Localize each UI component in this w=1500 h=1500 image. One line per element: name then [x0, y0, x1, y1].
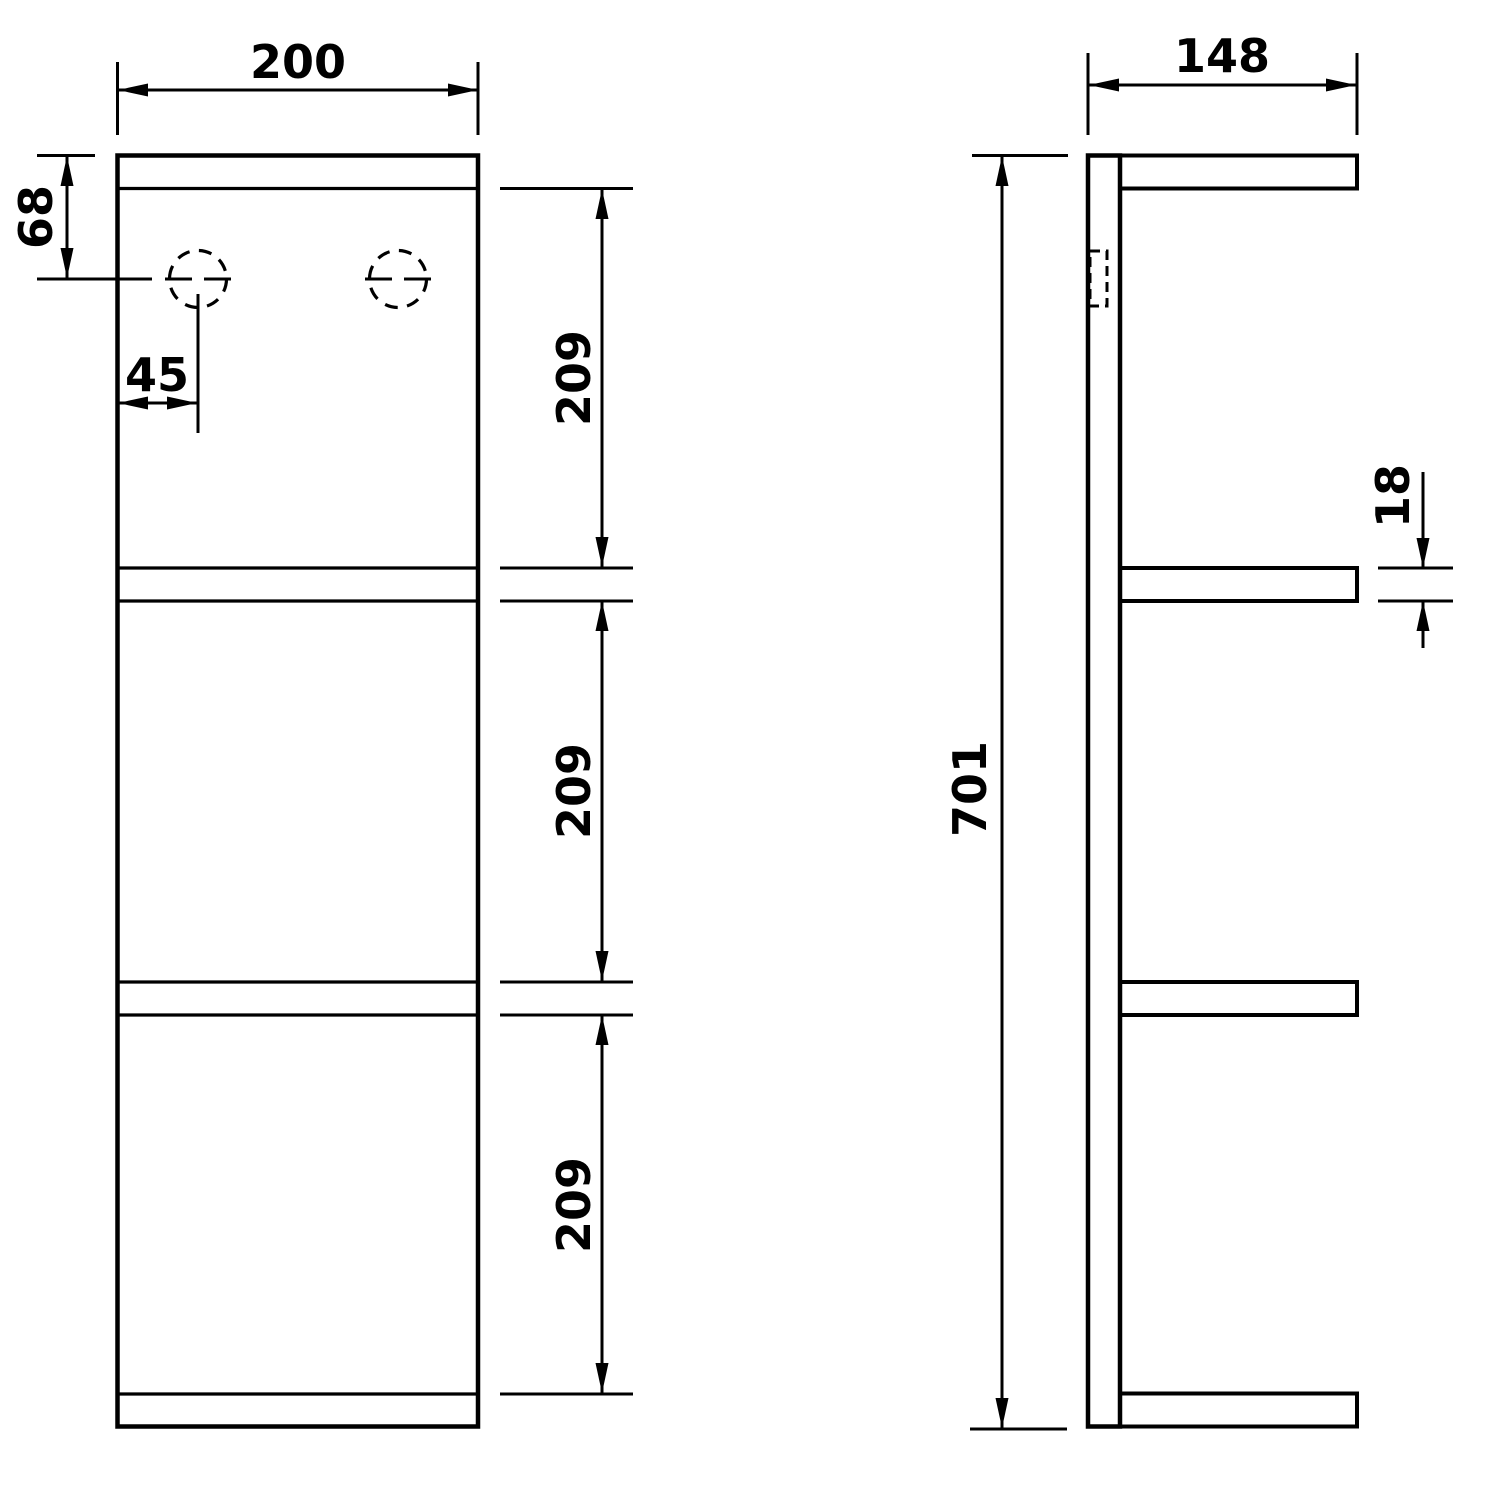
dim-label-hole-offset-top: 68	[9, 185, 63, 249]
arrowhead-left	[118, 84, 148, 97]
arrowhead-up	[996, 156, 1009, 186]
arrowhead-up	[596, 189, 609, 219]
dim-label-board-thickness: 18	[1366, 464, 1420, 528]
hole-centerlines	[165, 279, 431, 433]
side-shelf-3	[1120, 982, 1357, 1015]
arrowhead-down	[61, 248, 74, 278]
dim-label-hole-offset-left: 45	[125, 348, 189, 402]
dim-board-thickness: 18	[1366, 464, 1453, 648]
front-panel-outline	[118, 156, 479, 1427]
shelf-technical-drawing: 200 68 45 209	[0, 0, 1500, 1500]
dim-label-height: 701	[943, 741, 997, 837]
dim-front-width: 200	[118, 35, 479, 135]
dim-compartment-2: 209	[500, 601, 633, 982]
side-view: 148 701 18	[943, 29, 1453, 1429]
arrowhead-left	[1089, 79, 1119, 92]
arrowhead-down	[596, 951, 609, 981]
arrowhead-up	[61, 156, 74, 186]
arrowhead-down	[1417, 538, 1430, 568]
arrowhead-up	[1417, 601, 1430, 631]
front-view: 200 68 45 209	[9, 35, 633, 1427]
arrowhead-down	[996, 1398, 1009, 1428]
side-boards	[1120, 156, 1357, 1427]
arrowhead-down	[596, 1363, 609, 1393]
dim-label-compartment-2: 209	[547, 743, 601, 839]
dim-hole-offset-top: 68	[9, 156, 152, 280]
drawing-canvas: 200 68 45 209	[0, 0, 1500, 1500]
arrowhead-up	[596, 601, 609, 631]
side-top-board	[1120, 156, 1357, 189]
arrowhead-up	[596, 1015, 609, 1045]
side-bottom-board	[1120, 1394, 1357, 1427]
dim-label-depth: 148	[1174, 29, 1270, 83]
arrowhead-down	[596, 537, 609, 567]
dim-compartment-3: 209	[500, 1015, 633, 1394]
side-shelf-2	[1120, 568, 1357, 601]
dim-label-width: 200	[250, 35, 346, 89]
mounting-holes	[165, 251, 431, 434]
dim-label-compartment-3: 209	[547, 1157, 601, 1253]
arrowhead-right	[448, 84, 478, 97]
dim-side-depth: 148	[1088, 29, 1357, 135]
arrowhead-right	[1326, 79, 1356, 92]
dim-label-compartment-1: 209	[547, 330, 601, 426]
dim-hole-offset-left: 45	[118, 348, 197, 410]
dim-side-height: 701	[943, 156, 1068, 1430]
dim-compartment-1: 209	[500, 189, 633, 569]
side-back-panel	[1088, 156, 1120, 1427]
side-hidden-mounting-hole	[1090, 251, 1107, 306]
